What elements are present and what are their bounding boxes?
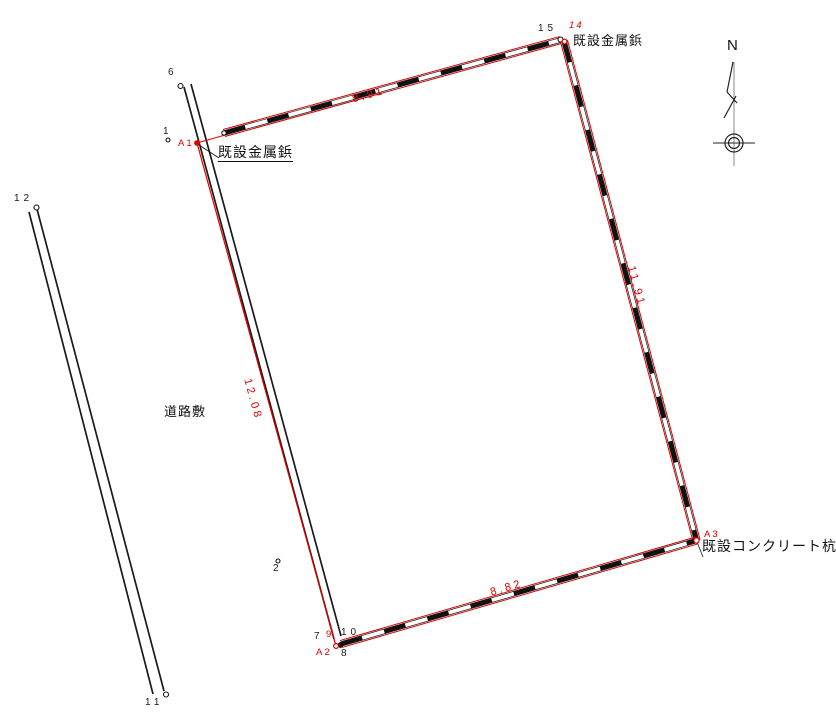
- point-label-a2: A2: [316, 648, 332, 658]
- point-label-a3: A3: [704, 530, 720, 540]
- survey-plat-drawing: N 道路敷 既設金属鋲 既設金属鋲 既設コンクリート杭 8.91 11.91 8…: [0, 0, 836, 716]
- point-marker-a1: [195, 141, 200, 146]
- point-label-11: 11: [145, 698, 163, 708]
- point-marker-14: [562, 39, 567, 44]
- boundary-edge-bottom: [340, 537, 697, 647]
- road-edge-line-east-inner: [191, 84, 341, 636]
- point-label-7: 7: [314, 632, 320, 642]
- point-label-8: 8: [341, 649, 347, 659]
- road-edge-line-west-outer: [29, 212, 153, 694]
- boundary-edge-left: [197, 143, 336, 646]
- road-edge-line-west-inner: [37, 209, 164, 691]
- boundary-edge-top: [223, 37, 561, 137]
- drawing-lines-layer: [0, 0, 836, 716]
- north-label: N: [727, 38, 738, 53]
- point-marker-6: [178, 84, 183, 89]
- marker-label-14: 既設金属鋲: [573, 34, 643, 47]
- point-label-12: 12: [14, 194, 33, 204]
- point-label-2: 2: [273, 564, 279, 574]
- point-label-15: 15: [538, 24, 557, 34]
- point-marker-a3: [694, 538, 699, 543]
- north-arrow: [713, 62, 755, 166]
- point-label-9: 9: [326, 630, 333, 640]
- road-area-label: 道路敷: [164, 405, 206, 418]
- marker-label-a1: 既設金属鋲: [218, 145, 293, 162]
- point-label-6: 6: [168, 68, 174, 78]
- point-label-14: 14: [569, 21, 584, 31]
- point-label-10: 10: [341, 628, 360, 638]
- marker-label-a3: 既設コンクリート杭: [702, 539, 836, 553]
- point-marker-11: [164, 692, 169, 697]
- point-label-1: 1: [163, 127, 169, 137]
- point-marker-a2: [334, 644, 339, 649]
- point-marker-12: [34, 205, 39, 210]
- point-label-a1: A1: [178, 139, 194, 149]
- point-marker-top-edge: [222, 131, 226, 135]
- boundary-edge-right: [561, 40, 701, 542]
- point-marker-1: [166, 138, 170, 142]
